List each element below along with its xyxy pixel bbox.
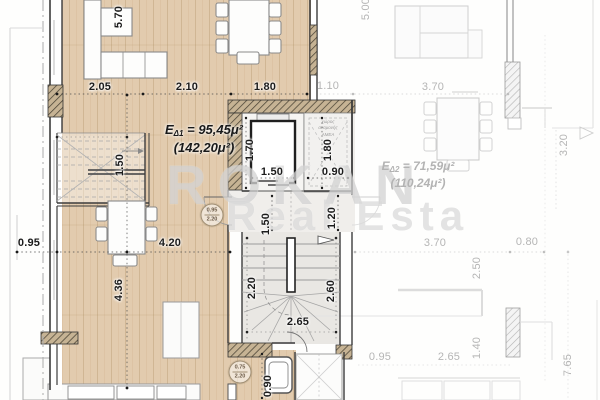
dim-south-e: 2.65	[438, 351, 460, 363]
door-size-tag-2: 0.752.20	[229, 361, 252, 384]
dim-entry-a: 1.10	[317, 80, 339, 92]
unit1-area-label: EΔ1 = 95,45μ² (142,20μ²)	[148, 121, 260, 157]
dim-kitchen-w: 4.20	[159, 237, 181, 249]
dim-east-h: 3.20	[558, 134, 570, 156]
dim-south-a: 3.70	[424, 237, 446, 249]
dim-south-b: 0.80	[516, 236, 538, 248]
dim-entry-b: 3.70	[422, 81, 444, 93]
dim-stair-width: 2.65	[287, 316, 309, 328]
dim-kitchen-h: 4.36	[113, 279, 125, 301]
dim-east-total: 7.65	[562, 354, 574, 376]
door-size-tag-1: 0.952.20	[201, 204, 224, 227]
dim-sofa-span: 5.70	[113, 6, 125, 28]
dim-west-offset: 0.95	[18, 237, 40, 249]
amea-waiting-note: χώρος αναμονής ΑΜΕΑ	[306, 119, 350, 138]
dim-living-b: 2.10	[176, 81, 198, 93]
floorplan-drawing	[0, 0, 600, 400]
boundary-line	[10, 0, 43, 400]
dim-north-span: 5.00	[360, 0, 372, 20]
dim-lobby-b: 1.20	[326, 207, 338, 229]
dim-stair-right: 2.60	[325, 280, 337, 302]
dim-amea-width: 0.90	[322, 166, 344, 178]
dim-stair-left: 2.20	[246, 277, 258, 299]
dim-south-f: 1.40	[471, 337, 483, 359]
dim-south-c: 2.50	[471, 257, 483, 279]
dim-living-a: 2.05	[89, 81, 111, 93]
floorplan: ROKAN Real Esta 5.70 2.05 2.10 1.80 1.70…	[0, 0, 600, 400]
dim-lobby-a: 1.50	[260, 213, 272, 235]
dim-living-c: 1.80	[254, 81, 276, 93]
dim-lift-width: 1.50	[261, 166, 283, 178]
dim-bath-w: 0.90	[262, 375, 274, 397]
dim-amea-depth: 1.80	[322, 139, 334, 161]
unit2-area-label: EΔ2 = 71,59μ² (110,24μ²)	[368, 158, 468, 192]
dim-south-d: 0.95	[369, 351, 391, 363]
dim-inner-stairs: 1.50	[114, 154, 126, 176]
